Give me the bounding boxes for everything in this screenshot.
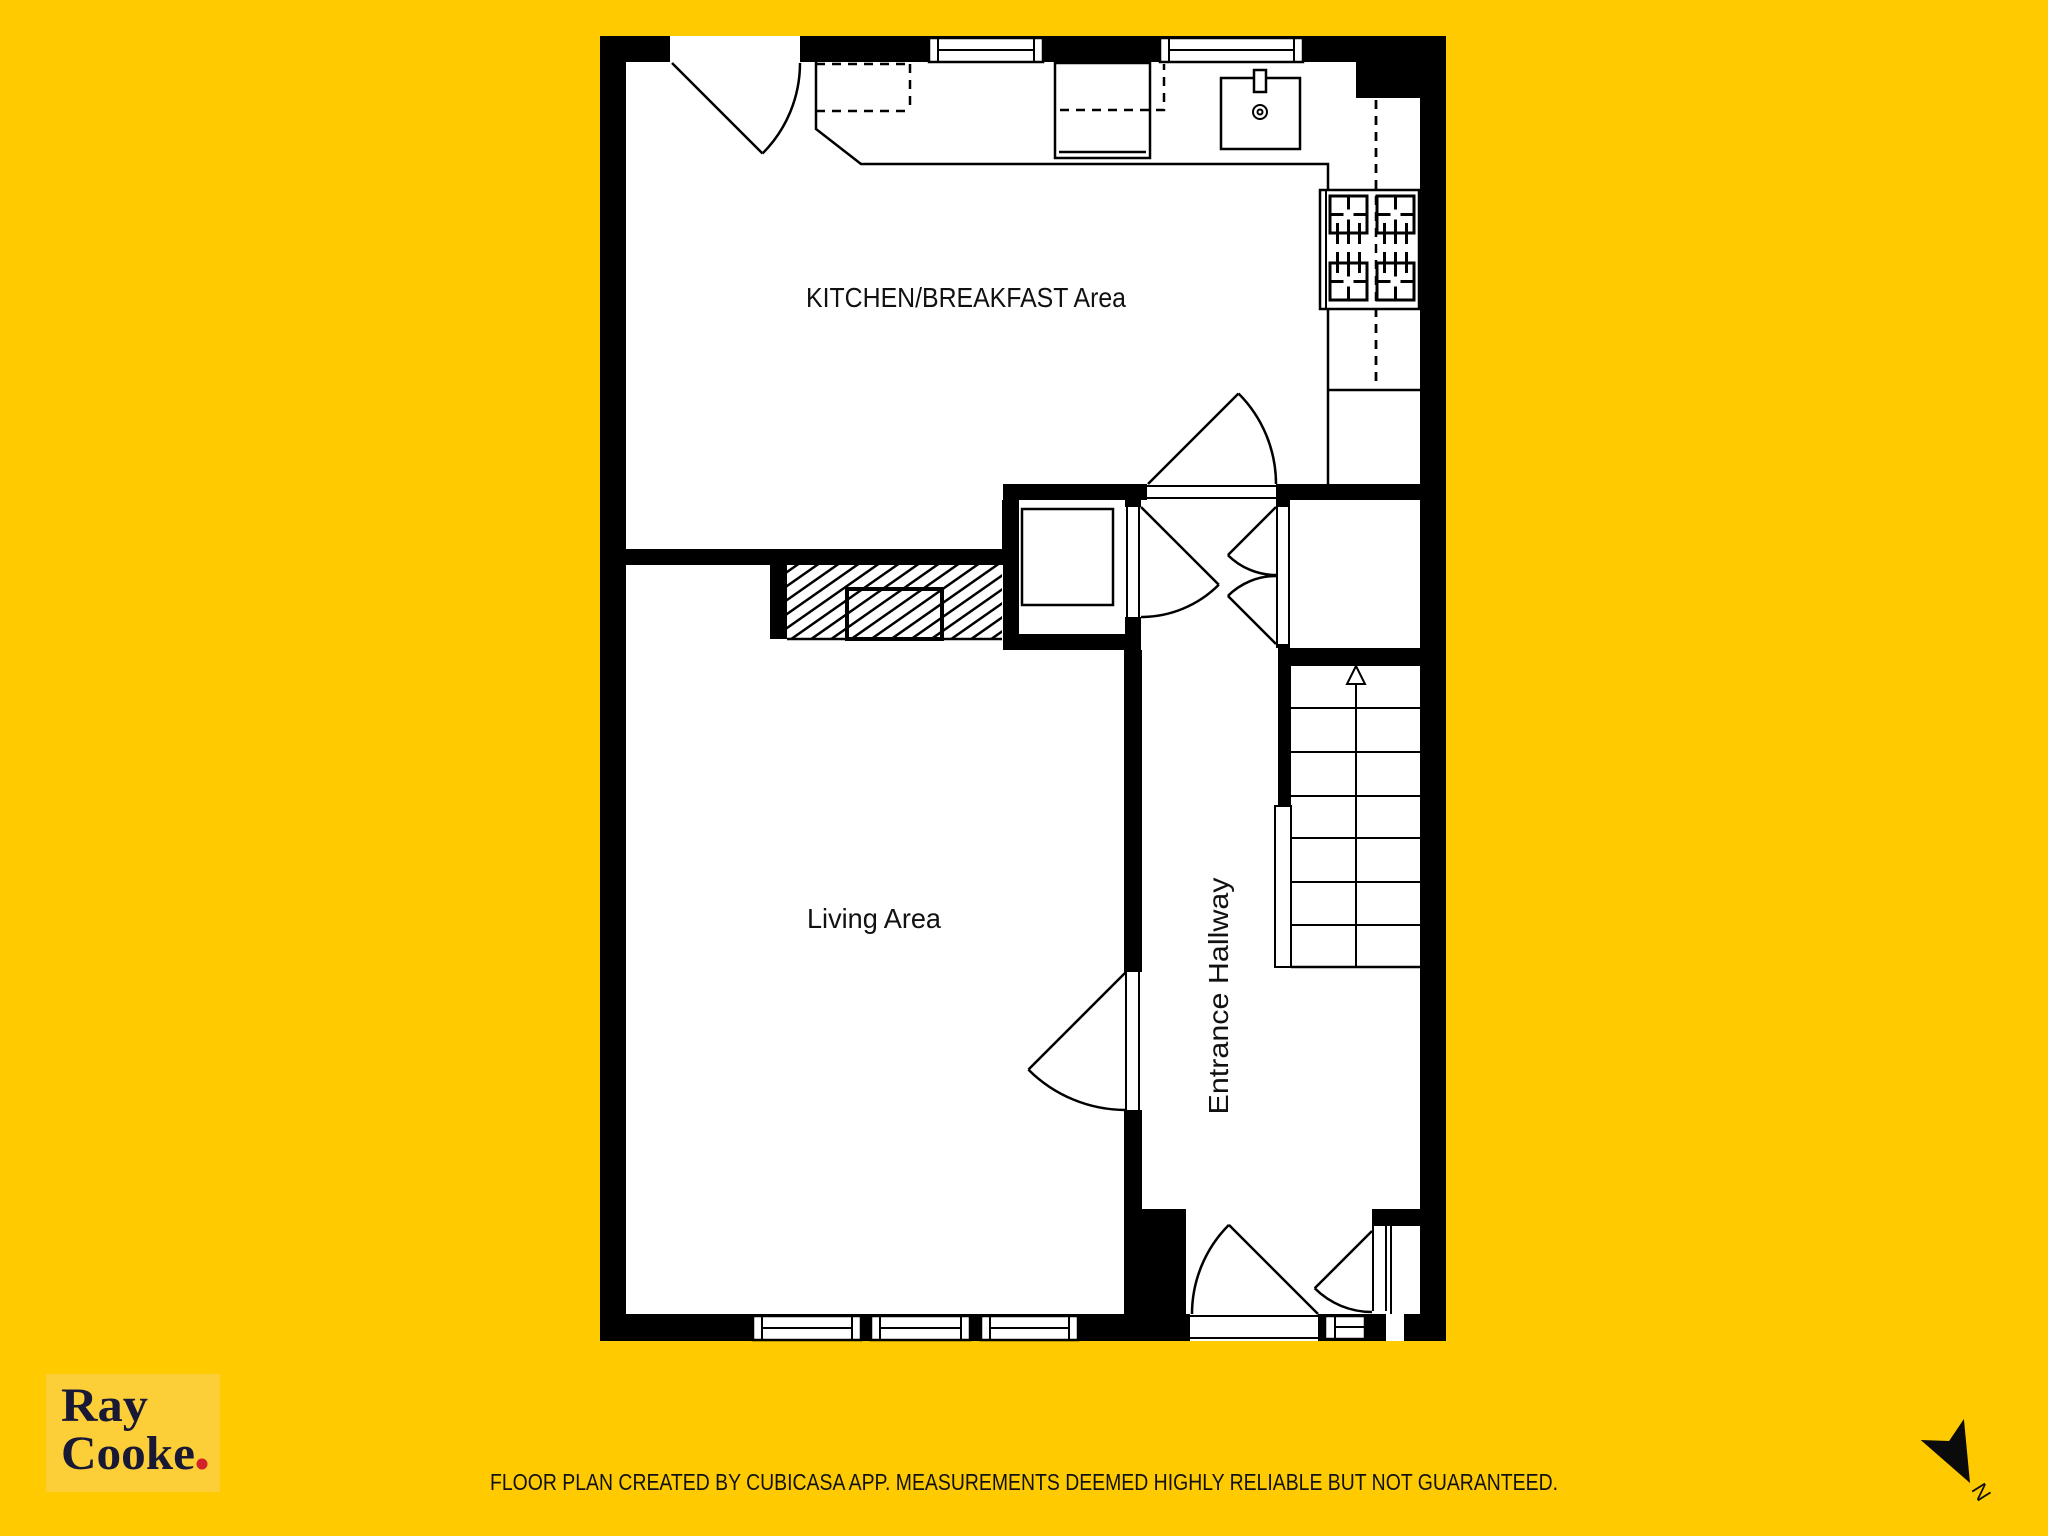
svg-text:Cooke: Cooke xyxy=(61,1427,195,1480)
svg-text:Entrance Hallway: Entrance Hallway xyxy=(1203,878,1234,1115)
svg-text:FLOOR PLAN CREATED BY CUBICASA: FLOOR PLAN CREATED BY CUBICASA APP. MEAS… xyxy=(490,1469,1558,1495)
svg-text:KITCHEN/BREAKFAST Area: KITCHEN/BREAKFAST Area xyxy=(806,282,1126,313)
svg-text:Ray: Ray xyxy=(61,1379,148,1432)
svg-text:Living Area: Living Area xyxy=(807,903,941,934)
